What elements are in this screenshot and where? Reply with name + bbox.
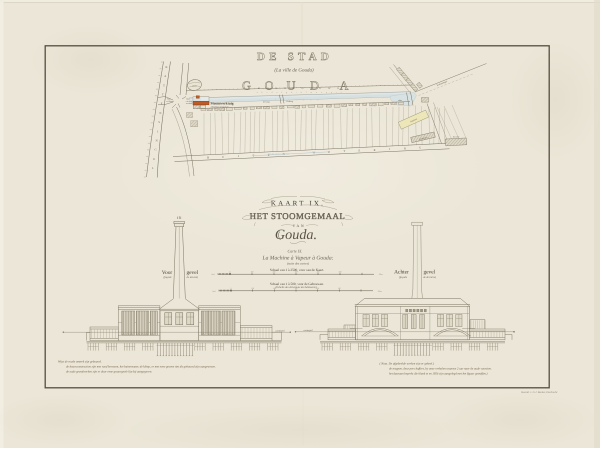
svg-text:T: T	[343, 150, 345, 153]
svg-text:de oude grondwerken zijn er do: de oude grondwerken zijn er door eene gr…	[66, 369, 152, 373]
svg-text:D: D	[310, 79, 319, 93]
svg-text:de derrière): de derrière)	[423, 276, 436, 279]
svg-text:0: 0	[230, 270, 231, 273]
svg-text:E: E	[359, 150, 361, 153]
svg-text:U: U	[287, 79, 296, 93]
svg-text:(façade: (façade	[399, 276, 408, 279]
svg-text:Achter: Achter	[394, 269, 409, 275]
svg-text:G: G	[154, 149, 156, 152]
svg-text:W: W	[313, 152, 316, 155]
svg-text:100: 100	[251, 287, 254, 290]
svg-text:Ellen.: Ellen.	[377, 290, 383, 293]
svg-text:Ned.: Ned.	[210, 273, 215, 276]
svg-text:E: E	[161, 103, 163, 106]
svg-text:het daaraan beperkt die blank: het daaraan beperkt die blank te en 1856…	[389, 371, 488, 375]
svg-text:Stoomwerktuig: Stoomwerktuig	[211, 102, 234, 106]
svg-text:400: 400	[316, 287, 319, 290]
svg-text:HET STOOMGEMAAL: HET STOOMGEMAAL	[250, 211, 346, 221]
svg-text:L: L	[152, 167, 154, 170]
svg-text:v.d.Singel: v.d.Singel	[166, 100, 174, 103]
svg-text:de werf: de werf	[453, 135, 460, 138]
svg-text:E: E	[328, 151, 330, 154]
svg-text:sluis: sluis	[398, 99, 402, 102]
svg-text:(suite des cartes): (suite des cartes)	[287, 262, 309, 266]
svg-text:N: N	[404, 147, 406, 150]
svg-text:O: O	[265, 79, 274, 93]
svg-text:Carte IX.: Carte IX.	[288, 249, 303, 254]
svg-text:DE STAD: DE STAD	[257, 51, 333, 63]
svg-text:N: N	[159, 112, 161, 115]
svg-text:G: G	[242, 79, 251, 93]
svg-text:(La ville de Gouda): (La ville de Gouda)	[274, 68, 314, 74]
svg-text:gevel: gevel	[423, 269, 435, 275]
svg-text:zomerpeil: zomerpeil	[275, 329, 285, 332]
svg-text:(façade: (façade	[163, 276, 172, 279]
svg-text:Ned.: Ned.	[211, 290, 216, 293]
svg-text:Punt: Punt	[167, 98, 171, 101]
svg-text:300: 300	[295, 270, 298, 273]
svg-text:G: G	[419, 147, 421, 150]
svg-text:Gouda.: Gouda.	[275, 227, 317, 243]
svg-text:Wijst de roode omtrek zijn geb: Wijst de roode omtrek zijn gebouwd.	[58, 359, 102, 363]
svg-text:100: 100	[251, 270, 254, 273]
svg-text:500: 500	[338, 287, 341, 290]
svg-text:de trappen, deur pers buffers,: de trappen, deur pers buffers, by onze v…	[389, 366, 492, 370]
svg-text:T: T	[163, 84, 165, 87]
svg-text:wachter: wachter	[186, 102, 193, 105]
svg-text:0: 0	[231, 287, 232, 290]
svg-text:200: 200	[273, 287, 276, 290]
svg-text:300: 300	[295, 287, 298, 290]
svg-text:Ellen.: Ellen.	[378, 273, 384, 276]
svg-text:I: I	[157, 130, 158, 133]
svg-text:A: A	[164, 75, 166, 78]
svg-text:plants: plants	[192, 85, 197, 88]
svg-text:H O O G E G O U W E: H O O G E G O U W E	[258, 87, 342, 90]
svg-text:U: U	[222, 156, 224, 159]
svg-text:( Nota. De afgebeelde werken z: ( Nota. De afgebeelde werken zijn er geh…	[380, 361, 434, 365]
svg-text:de bouwconstructien zijn met r: de bouwconstructien zijn met rood beweze…	[66, 364, 216, 368]
svg-text:B: B	[207, 157, 209, 160]
svg-text:T: T	[162, 94, 164, 97]
svg-text:A: A	[340, 79, 349, 93]
svg-text:K: K	[165, 66, 167, 69]
svg-text:200: 200	[273, 270, 276, 273]
svg-text:KAART IX.: KAART IX.	[271, 200, 325, 208]
svg-text:de brug: de brug	[263, 101, 271, 104]
svg-text:500: 500	[339, 270, 342, 273]
svg-text:Visbrug: Visbrug	[286, 100, 294, 103]
svg-text:zomerpeil: zomerpeil	[303, 329, 313, 332]
svg-text:Steendr. v. G.J. Backer, Dordr: Steendr. v. G.J. Backer, Dordrecht	[521, 391, 558, 394]
svg-text:E: E	[153, 158, 155, 161]
svg-text:de devant): de devant)	[187, 276, 198, 279]
svg-text:d e G o u w e: d e G o u w e	[275, 98, 321, 101]
svg-text:I: I	[238, 155, 239, 158]
svg-text:N: N	[156, 140, 158, 143]
svg-text:400: 400	[317, 270, 320, 273]
svg-text:a b c d e f g h i k l m n o p: a b c d e f g h i k l m n o p q r s	[257, 91, 344, 94]
svg-text:van de stads wetering: van de stads wetering	[268, 153, 290, 156]
svg-text:R: R	[374, 149, 376, 152]
svg-text:I: I	[389, 148, 390, 151]
